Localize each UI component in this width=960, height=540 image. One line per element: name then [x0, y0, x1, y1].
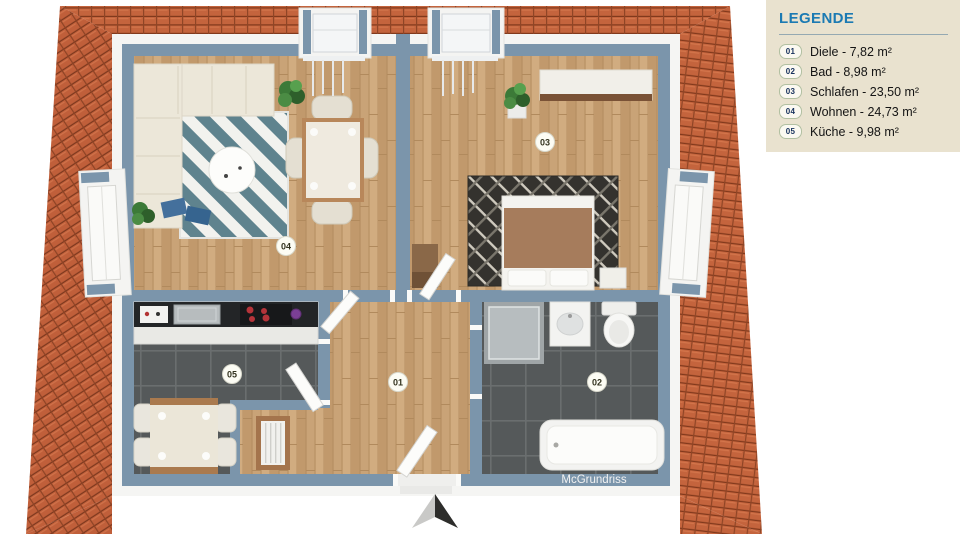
dining-chair [312, 96, 352, 120]
shower-tray [489, 307, 539, 359]
bedroom-step-upper [412, 244, 438, 274]
roof-top-slope [60, 6, 730, 34]
dormer-window-left [79, 169, 132, 297]
coffee-table-detail [238, 166, 242, 170]
entrance-step [400, 486, 452, 494]
coffee-machine-dot [145, 312, 149, 316]
legend-title: LEGENDE [779, 10, 948, 27]
watermark: McGrundriss [561, 474, 626, 486]
toilet-seat [609, 320, 629, 344]
coffee-table [209, 147, 255, 193]
legend-row-kueche: 05 Küche - 9,98 m² [779, 124, 948, 139]
legend-label-wohnen: Wohnen - 24,73 m² [810, 105, 917, 119]
kitchen-chair [216, 438, 236, 466]
table-pad [158, 452, 166, 460]
dining-chair [312, 200, 352, 224]
svg-text:01: 01 [393, 378, 403, 388]
wall-kitchen-nook-h [234, 400, 318, 410]
room-marker-04: 04 [277, 237, 296, 256]
legend-row-bad: 02 Bad - 8,98 m² [779, 64, 948, 79]
bathtub-drain [554, 443, 559, 448]
legend-row-diele: 01 Diele - 7,82 m² [779, 44, 948, 59]
table-pad [158, 412, 166, 420]
burner [249, 316, 255, 322]
bed-pillow [508, 270, 546, 286]
wall-mid-left [134, 290, 348, 302]
hallway-radiator [256, 416, 290, 470]
bed-pillow [550, 270, 588, 286]
table-pad [202, 412, 210, 420]
svg-text:02: 02 [592, 378, 602, 388]
floorplan-page: McGrundriss 01 02 03 04 05 LEGENDE 01 [0, 0, 960, 540]
svg-text:03: 03 [540, 138, 550, 148]
table-pad [310, 128, 318, 136]
wall-living-bedroom [396, 34, 410, 290]
legend-badge-05: 05 [779, 124, 802, 139]
legend-badge-04: 04 [779, 104, 802, 119]
kitchen-table-trim [150, 398, 218, 405]
legend-panel: LEGENDE 01 Diele - 7,82 m² 02 Bad - 8,98… [766, 0, 960, 152]
kitchen-table-trim [150, 467, 218, 474]
legend-row-wohnen: 04 Wohnen - 24,73 m² [779, 104, 948, 119]
room-marker-02: 02 [588, 373, 607, 392]
legend-label-schlafen: Schlafen - 23,50 m² [810, 85, 919, 99]
legend-badge-01: 01 [779, 44, 802, 59]
faucet [568, 314, 572, 318]
legend-label-diele: Diele - 7,82 m² [810, 45, 892, 59]
bathtub-basin [547, 426, 657, 464]
svg-text:05: 05 [227, 370, 237, 380]
legend-divider [779, 34, 948, 35]
coffee-machine-dot [156, 312, 160, 316]
room-marker-01: 01 [389, 373, 408, 392]
burner [261, 308, 267, 314]
legend-row-schlafen: 03 Schlafen - 23,50 m² [779, 84, 948, 99]
table-pad [202, 452, 210, 460]
burner [263, 315, 270, 322]
dormer-window-right [660, 168, 715, 297]
table-pad [348, 182, 356, 190]
cooking-pot [291, 309, 301, 319]
sideboard-trim [540, 94, 652, 101]
wall-mid-right [456, 290, 658, 302]
coffee-table-detail [224, 174, 228, 178]
room-marker-03: 03 [536, 133, 555, 152]
wall-hall-bath-lower [470, 394, 482, 474]
legend-label-kueche: Küche - 9,98 m² [810, 125, 899, 139]
coffee-machine [140, 306, 168, 323]
burner [247, 307, 254, 314]
svg-text:04: 04 [281, 242, 291, 252]
legend-label-bad: Bad - 8,98 m² [810, 65, 886, 79]
bed-blanket [504, 208, 592, 268]
table-pad [348, 128, 356, 136]
legend-badge-03: 03 [779, 84, 802, 99]
kitchen-chair [216, 404, 236, 432]
nightstand [600, 268, 626, 288]
legend-badge-02: 02 [779, 64, 802, 79]
table-pad [310, 182, 318, 190]
room-marker-05: 05 [223, 365, 242, 384]
